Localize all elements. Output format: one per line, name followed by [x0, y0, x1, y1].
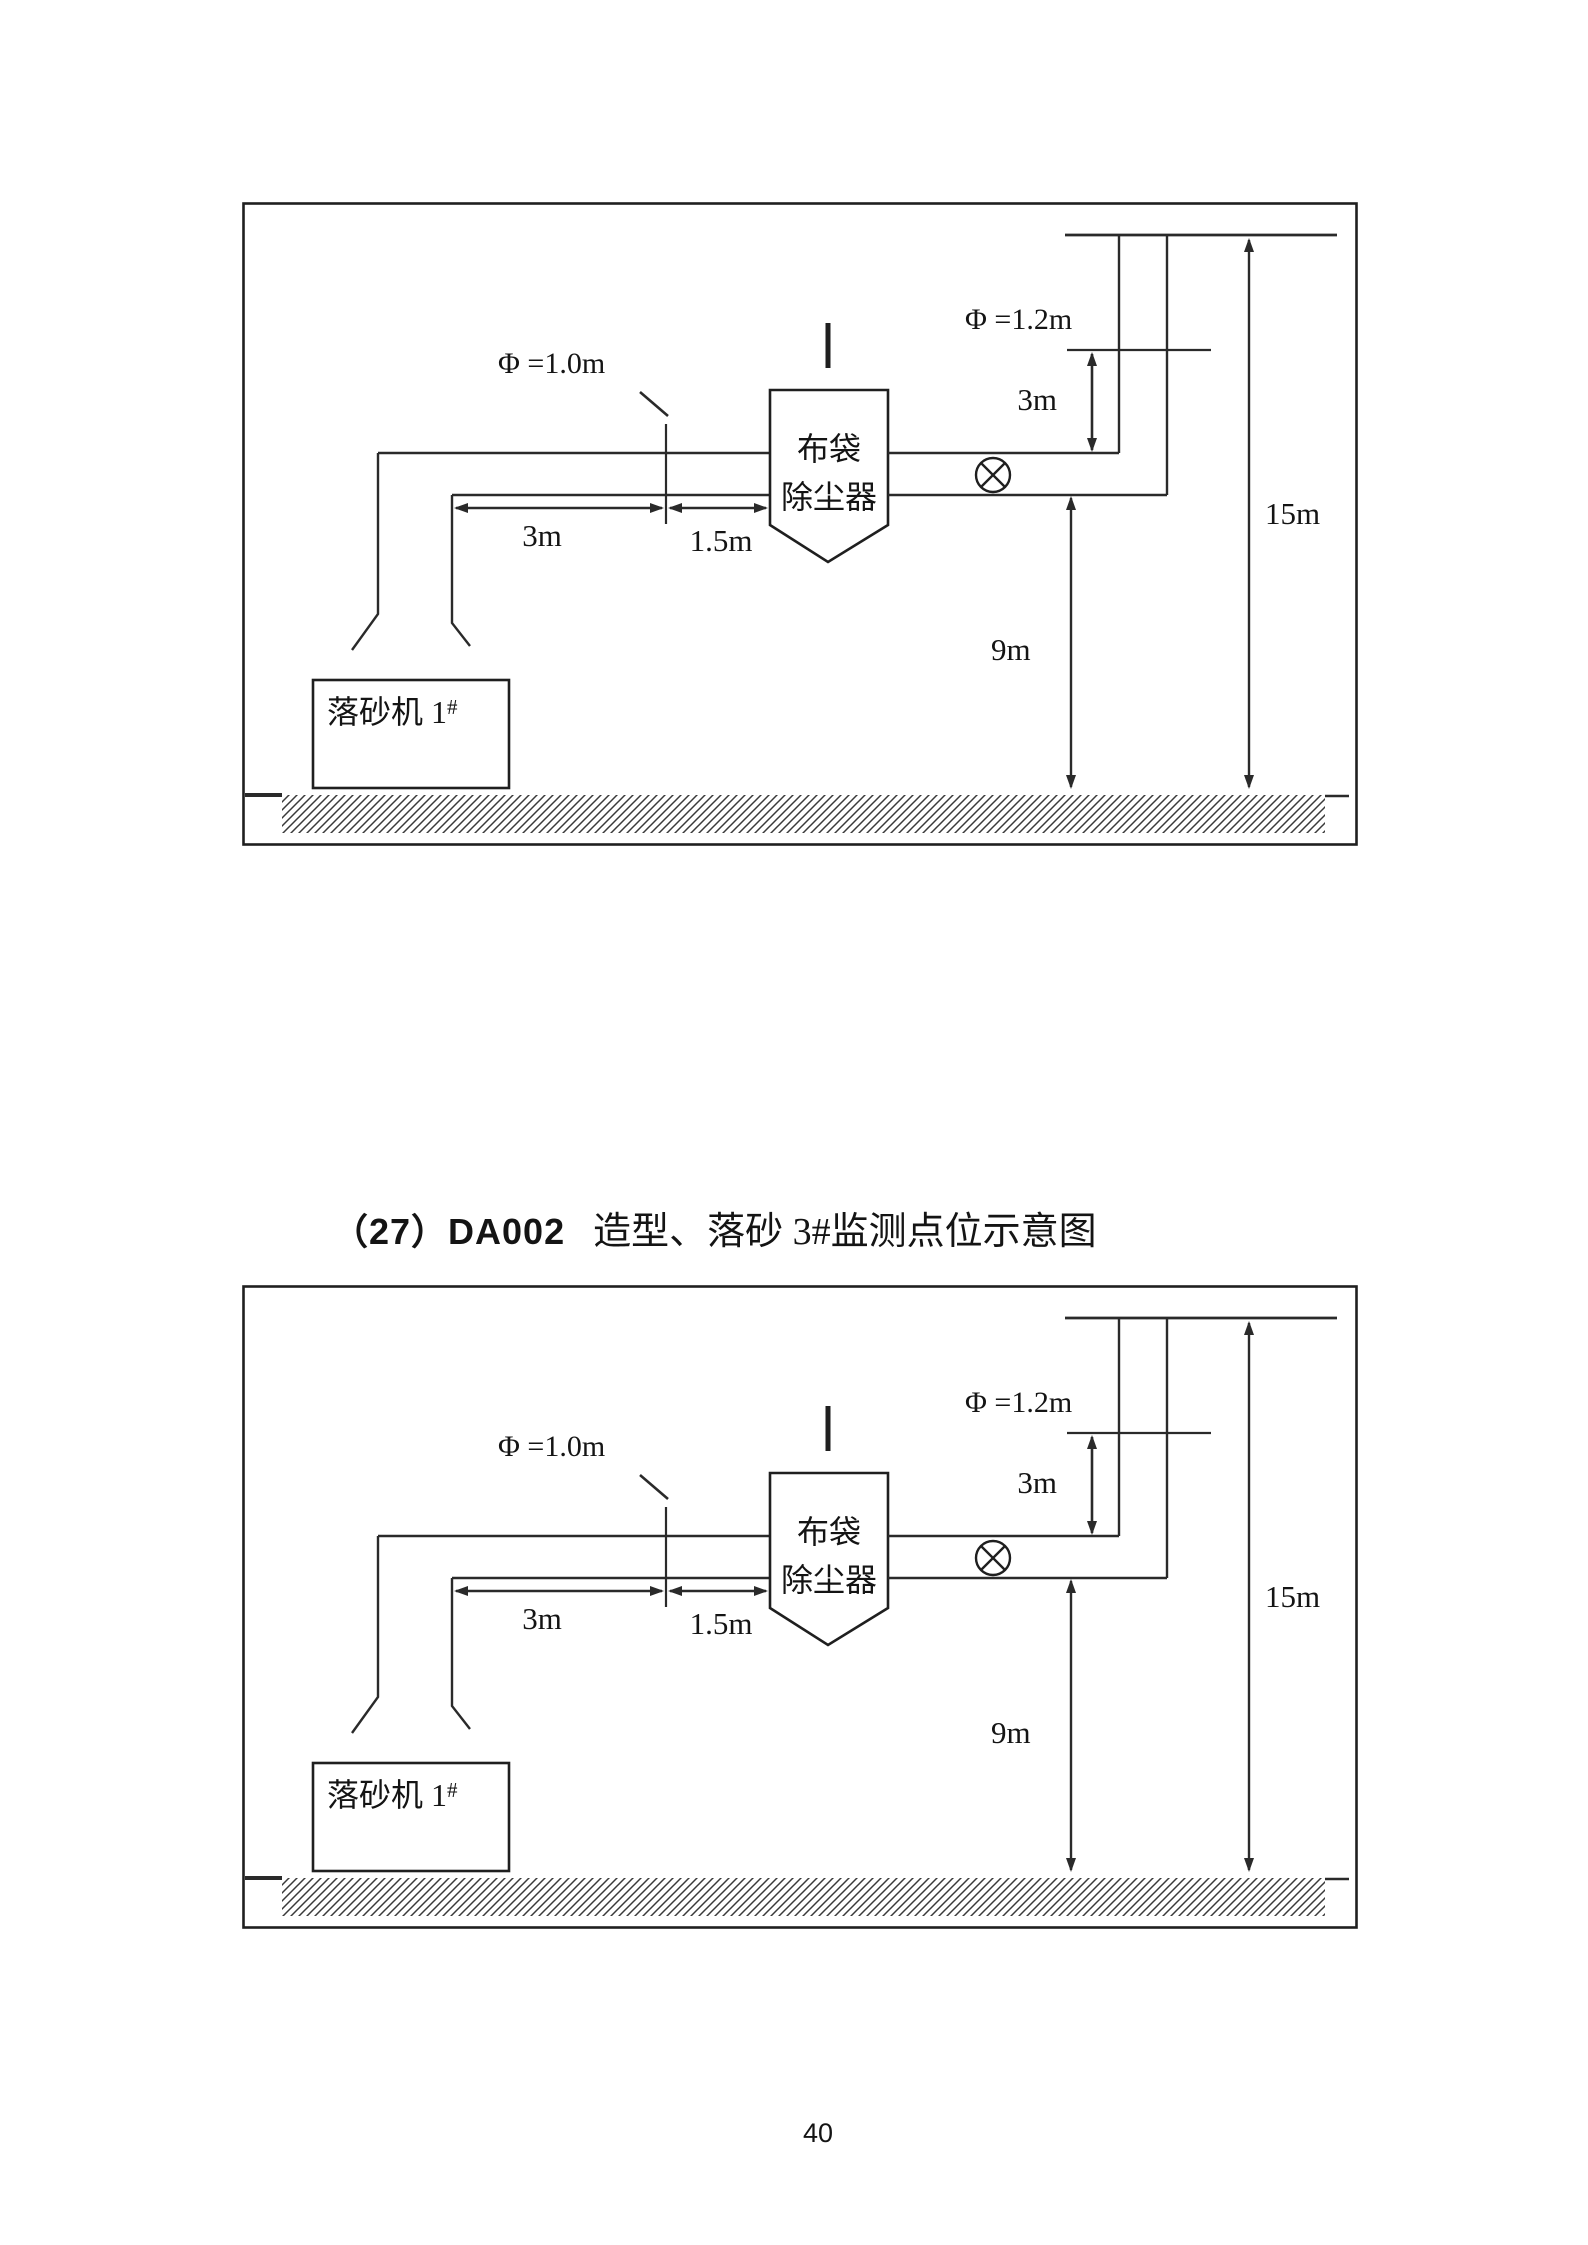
arrowhead-down [1087, 438, 1097, 452]
dimension-port-distance-1-5m: 1.5m [668, 503, 768, 558]
dimension-duct-elevation-9m: 9m [991, 496, 1076, 789]
monitoring-point-diagram-top: 落砂机 1# Φ =1.0m 3m [242, 202, 1358, 846]
dimension-duct-run-3m: 3m [454, 503, 664, 553]
arrowhead-right [754, 503, 768, 513]
duct-elevation-label: 9m [991, 632, 1031, 667]
dimension-duct-run-3m: 3m [454, 1586, 664, 1636]
arrowhead-down [1087, 1521, 1097, 1535]
bag-filter-label-line1: 布袋 [797, 1514, 861, 1550]
stack-diameter-label: Φ =1.2m [965, 1386, 1072, 1419]
dimension-duct-elevation-9m: 9m [991, 1579, 1076, 1872]
arrowhead-left [668, 503, 682, 513]
arrowhead-down [1066, 775, 1076, 789]
ground-hatch [282, 795, 1325, 833]
stack-port-height-label: 3m [1017, 1465, 1057, 1500]
dimension-stack-height-15m: 15m [1244, 1321, 1320, 1872]
bag-filter-box [770, 390, 888, 562]
duct-diameter-label: Φ =1.0m [498, 347, 605, 380]
port-distance-label: 1.5m [690, 1606, 753, 1641]
caption-title: 造型、落砂 3#监测点位示意图 [593, 1211, 1097, 1253]
arrowhead-right [754, 1586, 768, 1596]
arrowhead-up [1087, 1435, 1097, 1449]
duct-diameter-pointer-line [640, 392, 668, 416]
arrowhead-up [1087, 352, 1097, 366]
arrowhead-down [1244, 775, 1254, 789]
arrowhead-up [1244, 238, 1254, 252]
horizontal-duct [378, 1536, 770, 1578]
duct-diameter-pointer-line [640, 1475, 668, 1499]
arrowhead-up [1244, 1321, 1254, 1335]
dimension-stack-port-3m: 3m [1017, 352, 1097, 452]
duct-run-label: 3m [522, 1601, 562, 1636]
bag-filter-label-line1: 布袋 [797, 431, 861, 467]
riser-left-line [352, 453, 378, 650]
stack-height-label: 15m [1265, 496, 1320, 531]
arrowhead-up [1066, 1579, 1076, 1593]
monitoring-point-diagram-bottom: 落砂机 1# Φ =1.0m 3m 1. [242, 1285, 1358, 1929]
sand-machine-label: 落砂机 1# [327, 694, 458, 730]
dimension-stack-height-15m: 15m [1244, 238, 1320, 789]
arrowhead-down [1066, 1858, 1076, 1872]
hood-and-riser-duct [352, 453, 470, 650]
document-page: 落砂机 1# Φ =1.0m 3m [0, 0, 1588, 2245]
outlet-duct [888, 453, 1167, 495]
duct-diameter-label: Φ =1.0m [498, 1430, 605, 1463]
arrowhead-left [454, 503, 468, 513]
monitoring-point-icon [976, 458, 1010, 492]
arrowhead-right [650, 1586, 664, 1596]
ground-hatch [282, 1878, 1325, 1916]
bag-filter-label-line2: 除尘器 [781, 1562, 877, 1598]
monitoring-point-icon [976, 1541, 1010, 1575]
stack [1065, 1318, 1337, 1578]
stack-diameter-label: Φ =1.2m [965, 303, 1072, 336]
stack [1065, 235, 1337, 495]
diagram-canvas: 落砂机 1# Φ =1.0m 3m [242, 202, 1358, 846]
stack-height-label: 15m [1265, 1579, 1320, 1614]
riser-right-line [452, 495, 470, 646]
outlet-duct [888, 1536, 1167, 1578]
figure-caption: （27）DA002造型、落砂 3#监测点位示意图 [332, 1210, 1097, 1262]
caption-number: （27）DA002 [332, 1211, 565, 1252]
stack-port-height-label: 3m [1017, 382, 1057, 417]
arrowhead-left [454, 1586, 468, 1596]
riser-right-line [452, 1578, 470, 1729]
arrowhead-right [650, 503, 664, 513]
arrowhead-left [668, 1586, 682, 1596]
duct-elevation-label: 9m [991, 1715, 1031, 1750]
dimension-port-distance-1-5m: 1.5m [668, 1586, 768, 1641]
diagram-canvas: 落砂机 1# Φ =1.0m 3m 1. [242, 1285, 1358, 1929]
bag-filter-label-line2: 除尘器 [781, 479, 877, 515]
page-number: 40 [790, 2118, 846, 2149]
arrowhead-up [1066, 496, 1076, 510]
riser-left-line [352, 1536, 378, 1733]
arrowhead-down [1244, 1858, 1254, 1872]
hood-and-riser-duct [352, 1536, 470, 1733]
bag-filter-box [770, 1473, 888, 1645]
port-distance-label: 1.5m [690, 523, 753, 558]
ground [245, 795, 1349, 833]
horizontal-duct [378, 453, 770, 495]
dimension-stack-port-3m: 3m [1017, 1435, 1097, 1535]
sand-machine-label: 落砂机 1# [327, 1777, 458, 1813]
duct-run-label: 3m [522, 518, 562, 553]
ground [245, 1878, 1349, 1916]
